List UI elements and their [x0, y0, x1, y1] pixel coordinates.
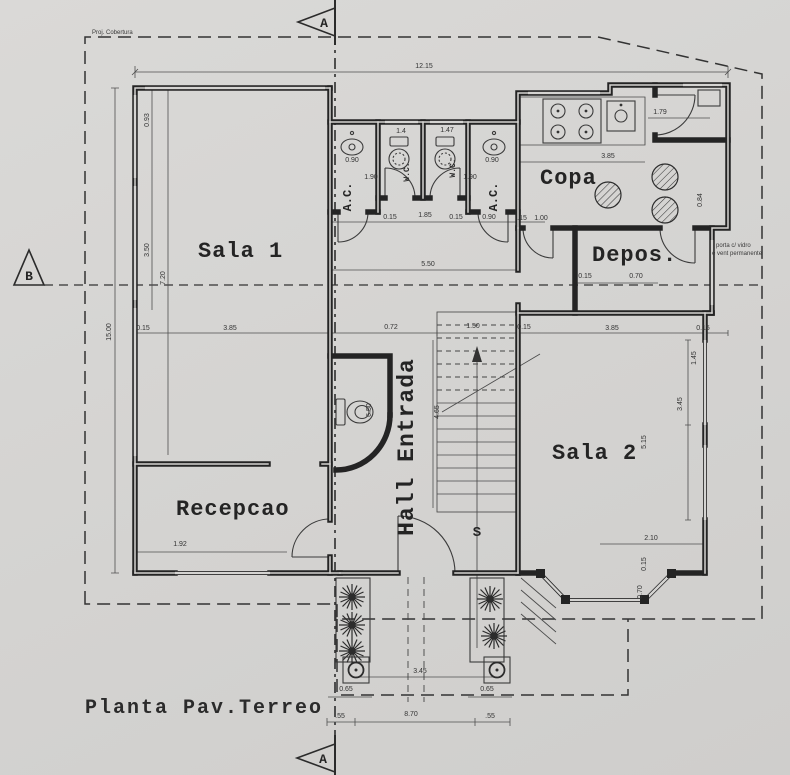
dimension-label: 15.00	[106, 323, 113, 341]
dimension-label: 0.15	[578, 273, 592, 280]
walkway-dashed-lines	[408, 577, 424, 702]
dimension-label: 1.45	[691, 351, 698, 365]
dimension-label: 0.65	[339, 686, 353, 693]
dimension-label: 1.85	[418, 212, 432, 219]
room-label-ac2: A.C.	[487, 183, 501, 212]
dimension-label: .15	[517, 215, 527, 222]
room-label-copa: Copa	[540, 166, 597, 191]
dimension-label: 1.4	[396, 128, 406, 135]
door-note-line1: porta c/ vidro	[716, 243, 751, 249]
dimension-label: 6.50	[366, 403, 373, 417]
dimension-label: 1.90	[364, 174, 378, 181]
entrance-porch	[336, 577, 556, 702]
plant-icon	[477, 586, 503, 612]
dimension-label: 1.00	[534, 215, 548, 222]
room-label-ac1: A.C.	[341, 183, 355, 212]
door-recepcao	[292, 519, 330, 557]
dimension-label: 0.15	[383, 214, 397, 221]
windows	[135, 85, 722, 604]
dimension-label: 0.93	[144, 113, 151, 127]
dimension-label: .55	[485, 713, 495, 720]
dimension-label: 8.70	[404, 711, 418, 718]
svg-text:A: A	[319, 752, 327, 767]
dimension-label: 3.50	[144, 243, 151, 257]
door-note-line2: e vent permanente	[712, 251, 763, 257]
room-label-hall: Hall Entrada	[394, 358, 420, 536]
dimension-label: 1.90	[463, 174, 477, 181]
drawing-title: Planta Pav.Terreo	[85, 697, 323, 720]
dimension-label: 1.92	[173, 541, 187, 548]
column-right	[484, 657, 510, 683]
dimension-label: 0.90	[345, 157, 359, 164]
room-label-deposito: Depos.	[592, 243, 677, 268]
section-markers: A A B	[14, 0, 335, 775]
dimension-label: 1.79	[653, 109, 667, 116]
plant-icon	[481, 623, 507, 649]
doors	[292, 95, 695, 573]
room-label-recepcao: Recepcao	[176, 497, 290, 522]
dimension-label: 0.90	[482, 214, 496, 221]
plant-icon	[339, 612, 365, 638]
dimension-label: 0.15	[517, 324, 531, 331]
round-table	[652, 164, 678, 190]
dimension-label: 1.50	[466, 323, 480, 330]
svg-text:B: B	[25, 269, 33, 284]
top-right-fixture	[698, 90, 720, 106]
kitchen-counter	[518, 97, 645, 145]
dimension-label: 0.15	[449, 214, 463, 221]
plant-icon	[339, 584, 365, 610]
floor-plan-canvas: Proj. Cobertura	[0, 0, 790, 775]
dimension-label: 5.50	[421, 261, 435, 268]
dimension-label: 0.72	[384, 324, 398, 331]
round-table	[595, 182, 621, 208]
round-table	[652, 197, 678, 223]
door-copa	[523, 228, 553, 258]
dimension-label: 1.47	[440, 127, 454, 134]
dimension-label: 3.45	[677, 397, 684, 411]
dimension-label: 0.70	[629, 273, 643, 280]
room-label-wc2: W.C.	[449, 158, 458, 177]
roof-projection-label: Proj. Cobertura	[92, 30, 133, 36]
dimension-label: .55	[335, 713, 345, 720]
exterior-steps	[521, 578, 556, 644]
dimension-label: 3.45	[413, 668, 427, 675]
dimension-label: 0.84	[697, 193, 704, 207]
stair-up-arrow-icon	[472, 346, 482, 362]
dimension-label: 0.70	[637, 585, 644, 599]
room-label-sala2: Sala 2	[552, 441, 637, 466]
dimension-label: 0.15	[696, 325, 710, 332]
notes: porta c/ vidro e vent permanente	[712, 243, 763, 257]
dimension-label: 0.90	[485, 157, 499, 164]
sink-left	[341, 131, 363, 155]
stove	[543, 99, 601, 143]
dimension-label: 2.10	[644, 535, 658, 542]
dimension-label: 0.65	[480, 686, 494, 693]
dimension-label: 3.85	[605, 325, 619, 332]
drawing-sheet: Proj. Cobertura	[0, 0, 790, 775]
dimension-label: 0.15	[136, 325, 150, 332]
room-label-wc1: W.C.	[403, 162, 412, 181]
dimension-label: 4.65	[434, 405, 441, 419]
door-ac1	[338, 212, 368, 242]
sink-right	[483, 131, 505, 155]
dimension-label: 7.20	[160, 271, 167, 285]
section-marker-b-left: B	[14, 250, 44, 285]
dimension-label: 12.15	[415, 63, 433, 70]
dimension-label: 3.85	[223, 325, 237, 332]
dimension-label: 3.85	[601, 153, 615, 160]
section-marker-a-top: A	[298, 0, 335, 45]
room-label-sala1: Sala 1	[198, 239, 283, 264]
section-marker-a-bottom: A	[297, 735, 335, 775]
dimension-label: 5.15	[641, 435, 648, 449]
svg-text:A: A	[320, 16, 328, 31]
stairs-up-label: S	[473, 525, 481, 541]
dimension-label: 0.15	[641, 557, 648, 571]
